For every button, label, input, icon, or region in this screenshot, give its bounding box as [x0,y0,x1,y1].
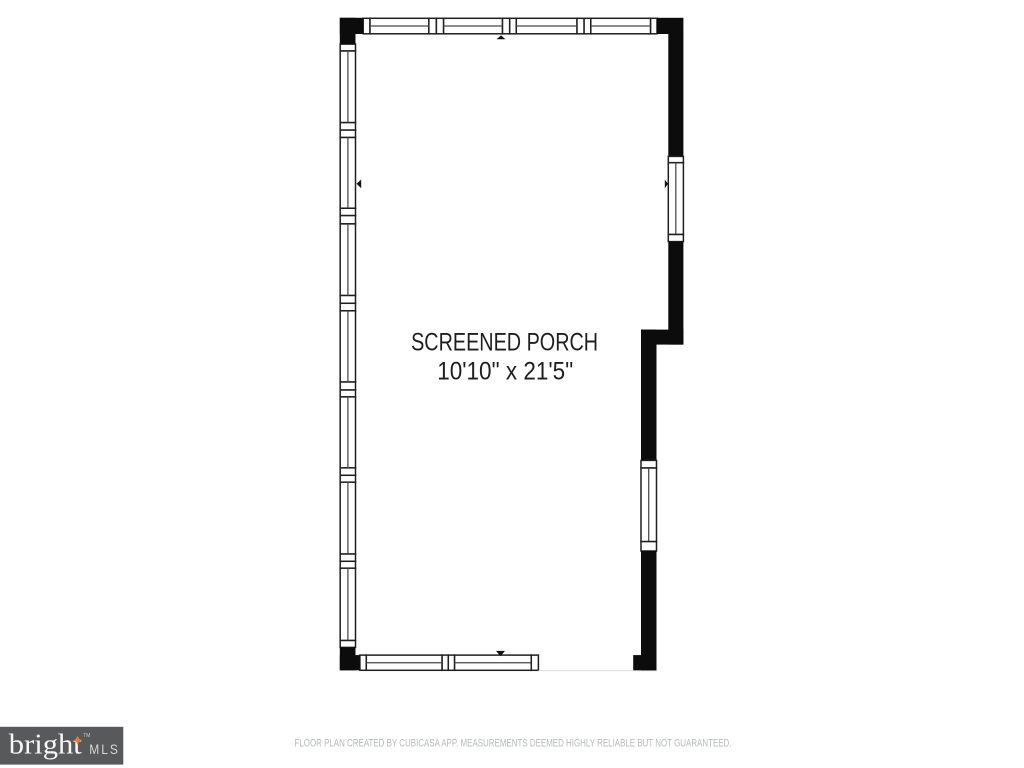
svg-text:MLS: MLS [89,742,120,757]
svg-text:TM: TM [83,733,90,739]
svg-text:FLOOR PLAN CREATED BY CUBICASA: FLOOR PLAN CREATED BY CUBICASA APP. MEAS… [295,738,732,750]
svg-text:SCREENED PORCH: SCREENED PORCH [411,328,598,356]
svg-text:bright: bright [9,729,82,761]
svg-text:10'10" x 21'5": 10'10" x 21'5" [437,358,573,386]
